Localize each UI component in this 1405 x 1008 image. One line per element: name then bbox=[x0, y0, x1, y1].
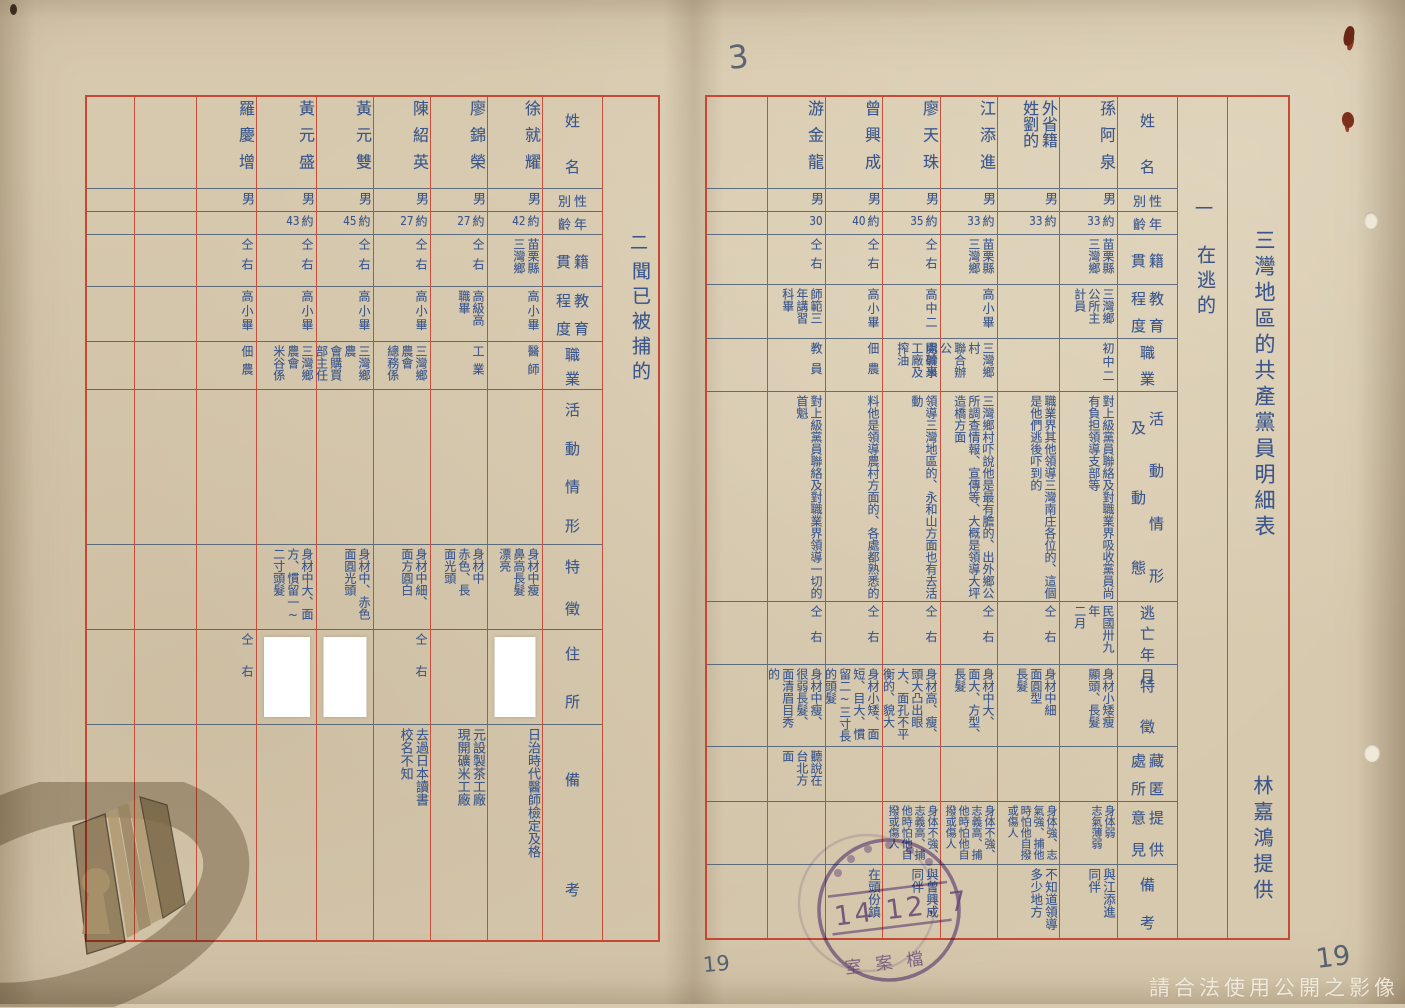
title-column: 三灣地區的共產黨員明細表林嘉鴻提供 bbox=[1227, 97, 1292, 938]
cell-age bbox=[707, 212, 767, 235]
cell-occupation: 醫師 bbox=[488, 342, 542, 390]
handwritten-text: 羅慶增 bbox=[235, 100, 254, 186]
header-activity: 活動情形及動態 bbox=[1118, 392, 1177, 602]
cell-occupation bbox=[707, 339, 767, 392]
cell-sex: 男 bbox=[197, 189, 256, 212]
header-char: 住 bbox=[565, 643, 580, 664]
handwritten-text: 男 bbox=[1100, 192, 1115, 209]
cell-hiding-place bbox=[826, 747, 882, 802]
header-char: 籍 bbox=[574, 251, 589, 272]
cell-activity bbox=[374, 390, 430, 545]
handwritten-text: 男 bbox=[413, 192, 428, 209]
watermark-text: 請合法使用公開之影像 bbox=[1149, 972, 1399, 1002]
cell-name: 黃元盛 bbox=[257, 97, 316, 189]
header-char: 供 bbox=[1149, 839, 1164, 860]
cell-age bbox=[197, 212, 256, 235]
header-label-chunk: 年 bbox=[574, 212, 587, 235]
header-label-chunk: 意見 bbox=[1131, 802, 1146, 865]
cell-hiding-place bbox=[707, 747, 767, 802]
cell-occupation: 職業 bbox=[1118, 339, 1177, 392]
cell-occupation: 三灣鄉村 聯合辦公 處幹事 bbox=[941, 339, 997, 392]
cell-address bbox=[317, 630, 373, 725]
cell-occupation: 佃農 bbox=[826, 339, 882, 392]
handwritten-text: 師範三 年講習 科畢 bbox=[781, 288, 823, 336]
cell-hiding-place: 聽說在 台北方 面 bbox=[768, 747, 825, 802]
handwritten-text: 對上級黨員聯絡及對職業界吸收黨員尚有負担領導支部等 bbox=[1087, 395, 1115, 599]
cell-features: 身材中瘦、 很弱長髮、 面清眉目秀 的 bbox=[768, 665, 825, 747]
empty-column bbox=[707, 97, 767, 938]
person-column: 孫阿泉男約33苗栗縣 三灣鄉三灣鄉 公所主 計員初中二對上級黨員聯絡及對職業界吸… bbox=[1059, 97, 1117, 938]
header-label-chunk: 姓名 bbox=[1140, 97, 1155, 189]
cell-features: 身材中 赤色、長 面光頭 bbox=[431, 545, 487, 630]
section-label: 在逃的 bbox=[1193, 245, 1216, 320]
cell-activity bbox=[707, 392, 767, 602]
handwritten-text: 職業界其他領導三灣南庄各位的、這個是他們逃後吓到的 bbox=[1029, 395, 1057, 599]
cell-sex: 男 bbox=[941, 189, 997, 212]
cell-age: 約35 bbox=[883, 212, 940, 235]
handwritten-text: 仝右 bbox=[981, 605, 995, 662]
cell-education: 高小畢 bbox=[257, 287, 316, 342]
handwritten-text: 高小畢 bbox=[300, 290, 314, 339]
header-char: 逃 bbox=[1140, 602, 1155, 623]
header-opinion: 提供意見 bbox=[1118, 802, 1177, 865]
handwritten-text: 高小畢 bbox=[866, 288, 880, 336]
handwritten-text: 仝右 bbox=[240, 238, 254, 284]
cell-name bbox=[87, 97, 134, 189]
handwritten-text: 身材中細 面圓型 長髮 bbox=[1015, 668, 1057, 744]
handwritten-text: 身材高、瘦、頭大凸出眼大、面孔不平衡的、貌大 bbox=[881, 668, 938, 744]
cell-address bbox=[488, 630, 542, 725]
header-label-chunk: 籍 bbox=[574, 235, 589, 287]
cell-hiding-place: 藏匿處所 bbox=[1118, 747, 1177, 802]
handwritten-text: 三灣鄉農會 米谷係 bbox=[272, 345, 314, 387]
cell-hiding-place bbox=[941, 747, 997, 802]
header-label-chunk: 活動情形 bbox=[565, 390, 580, 545]
cell-name: 廖天珠 bbox=[883, 97, 940, 189]
header-hiding-place: 藏匿處所 bbox=[1118, 747, 1177, 802]
handwritten-text: 仝右 bbox=[809, 605, 823, 662]
handwritten-text: 仝右 bbox=[924, 605, 938, 662]
handwritten-text: 游金龍 bbox=[804, 100, 823, 186]
header-label-chunk: 程度 bbox=[556, 287, 571, 342]
handwritten-text: 廖天珠 bbox=[919, 100, 938, 186]
cell-age: 30 bbox=[768, 212, 825, 235]
cell-native-place: 仝右 bbox=[431, 235, 487, 287]
cell-sex: 男 bbox=[826, 189, 882, 212]
header-column: 姓名性別年齡籍貫教育程度職業活動情形及動態逃亡年月特徵藏匿處所提供意見備考 bbox=[1117, 97, 1177, 938]
cell-remarks: 備考 bbox=[543, 725, 602, 944]
cell-fled-date: 仝右 bbox=[998, 602, 1059, 665]
handwritten-text: 高小畢 bbox=[240, 290, 254, 339]
handwritten-text: 身材小矮瘦 顯頭、長髮 bbox=[1087, 668, 1115, 744]
header-label-chunk: 藏匿 bbox=[1149, 747, 1164, 802]
handwritten-text: 苗栗縣 三灣鄉 bbox=[1087, 238, 1115, 282]
cell-occupation: 教員 bbox=[768, 339, 825, 392]
handwritten-text: 男 bbox=[1042, 192, 1057, 209]
header-char: 考 bbox=[565, 879, 580, 900]
handwritten-text: 仝右 bbox=[240, 633, 254, 722]
header-label-chunk: 處所 bbox=[1131, 747, 1146, 802]
header-char: 職 bbox=[565, 344, 580, 365]
cell-education bbox=[135, 287, 196, 342]
cell-native-place: 仝右 bbox=[826, 235, 882, 285]
archives-watermark-logo bbox=[0, 782, 385, 1007]
header-char: 性 bbox=[574, 191, 587, 210]
handwritten-text: 身材中、赤色面圓光頭 bbox=[343, 548, 371, 627]
header-char: 考 bbox=[1140, 912, 1155, 933]
handwritten-text: 男 bbox=[980, 192, 995, 209]
header-native-place: 籍貫 bbox=[543, 235, 602, 287]
cell-features: 身材中大、 面大、方型、 長髮 bbox=[941, 665, 997, 747]
handwritten-text: 仝右 bbox=[866, 238, 880, 282]
cell-occupation: 三灣鄉農會 米谷係 bbox=[257, 342, 316, 390]
header-char: 業 bbox=[1140, 368, 1155, 389]
handwritten-text: 民國卅九年 二月 bbox=[1073, 605, 1115, 662]
cell-native-place: 籍貫 bbox=[1118, 235, 1177, 285]
cell-name: 姓名 bbox=[1118, 97, 1177, 189]
cell-name: 江添進 bbox=[941, 97, 997, 189]
cell-features: 特徵 bbox=[1118, 665, 1177, 747]
cell-native-place: 仝右 bbox=[317, 235, 373, 287]
handwritten-text: 初中二 bbox=[1101, 342, 1115, 389]
cell-education: 教育程度 bbox=[543, 287, 602, 342]
cell-native-place: 仝右 bbox=[197, 235, 256, 287]
cell-address: 仝右 bbox=[197, 630, 256, 725]
header-char: 活 bbox=[565, 399, 580, 420]
cell-sex: 男 bbox=[257, 189, 316, 212]
handwritten-text: 身材中瘦 鼻高長髮 漂亮 bbox=[498, 548, 540, 627]
handwritten-text: 約43 bbox=[286, 215, 314, 232]
handwritten-text: 三灣鄉村吓說他是最有膽的、出外鄉公所調查情報、宣傳等、大概是領導大坪造橋方面 bbox=[953, 395, 995, 599]
header-label-chunk: 住所 bbox=[565, 630, 580, 725]
header-char: 提 bbox=[1149, 807, 1164, 828]
cell-education: 高小畢 bbox=[941, 285, 997, 339]
header-char: 動 bbox=[565, 438, 580, 459]
handwritten-text: 仝右 bbox=[809, 238, 823, 282]
cell-age: 約33 bbox=[998, 212, 1059, 235]
handwritten-text: 日治時代醫師檢定及格 bbox=[525, 728, 540, 941]
cell-occupation bbox=[87, 342, 134, 390]
handwritten-text: 身材小矮、面短、目大、慣留二~三寸長的頭髮 bbox=[823, 668, 880, 744]
cell-remarks: 備考 bbox=[1118, 865, 1177, 942]
header-char: 育 bbox=[1149, 315, 1164, 336]
header-char: 備 bbox=[565, 769, 580, 790]
handwritten-text: 三灣鄉農 會購買 部主任 bbox=[314, 345, 371, 387]
header-char: 貫 bbox=[1131, 250, 1146, 271]
cell-name bbox=[135, 97, 196, 189]
document-title: 三灣地區的共產黨員明細表 bbox=[1251, 229, 1276, 541]
cell-name: 游金龍 bbox=[768, 97, 825, 189]
edge-spot-top-left bbox=[10, 4, 17, 15]
cell-age: 約45 bbox=[317, 212, 373, 235]
header-label-chunk: 性 bbox=[1149, 189, 1162, 212]
header-label-chunk: 貫 bbox=[556, 235, 571, 287]
cell-native-place: 仝右 bbox=[374, 235, 430, 287]
cell-name: 黃元雙 bbox=[317, 97, 373, 189]
header-features: 特徵 bbox=[1118, 665, 1177, 747]
header-char: 情 bbox=[1149, 513, 1164, 534]
header-char: 活 bbox=[1149, 408, 1164, 429]
header-char: 藏 bbox=[1149, 750, 1164, 771]
handwritten-text: 料他是領導農村方面的、各處都熟悉的 bbox=[866, 395, 880, 599]
handwritten-text: 身材中瘦、 很弱長髮、 面清眉目秀 的 bbox=[766, 668, 823, 744]
header-char: 動 bbox=[1131, 487, 1146, 508]
cell-features: 身材高、瘦、頭大凸出眼大、面孔不平衡的、貌大 bbox=[883, 665, 940, 747]
section-number: 二 bbox=[626, 233, 648, 251]
cell-name: 孫阿泉 bbox=[1060, 97, 1117, 189]
header-label-chunk: 貫 bbox=[1131, 235, 1146, 285]
header-label-chunk: 特徵 bbox=[565, 545, 580, 630]
cell-native-place bbox=[998, 235, 1059, 285]
cell-remarks bbox=[707, 865, 767, 942]
handwritten-text: 對上級黨員聯絡及對職業界領導一切的首魁 bbox=[795, 395, 823, 599]
header-name: 姓名 bbox=[543, 97, 602, 189]
cell-name bbox=[707, 97, 767, 189]
cell-occupation: 三灣鄉農 會購買 部主任 bbox=[317, 342, 373, 390]
cell-activity bbox=[135, 390, 196, 545]
handwritten-text: 約27 bbox=[400, 215, 428, 232]
header-label-chunk: 教育 bbox=[574, 287, 589, 342]
cell-activity: 活動情形及動態 bbox=[1118, 392, 1177, 602]
handwritten-text: 去過日本讀書 校名不知 bbox=[397, 728, 428, 941]
header-remarks: 備考 bbox=[1118, 865, 1177, 942]
cell-native-place bbox=[707, 235, 767, 285]
handwritten-text: 苗栗縣 三灣鄉 bbox=[967, 238, 995, 282]
handwritten-text: 男 bbox=[356, 192, 371, 209]
header-char: 姓 bbox=[1140, 110, 1155, 131]
header-char: 所 bbox=[565, 691, 580, 712]
cell-address bbox=[257, 630, 316, 725]
header-name: 姓名 bbox=[1118, 97, 1177, 189]
header-label-chunk: 籍 bbox=[1149, 235, 1164, 285]
cell-sex bbox=[135, 189, 196, 212]
header-char: 齡 bbox=[558, 214, 571, 233]
cell-occupation bbox=[998, 339, 1059, 392]
handwritten-text: 身材中大、面方、慣留一~二寸頭髮 bbox=[272, 548, 314, 627]
header-address: 住所 bbox=[543, 630, 602, 725]
header-char: 姓 bbox=[565, 110, 580, 131]
cell-activity: 三灣鄉村吓說他是最有膽的、出外鄉公所調查情報、宣傳等、大概是領導大坪造橋方面 bbox=[941, 392, 997, 602]
header-age: 年齡 bbox=[543, 212, 602, 235]
header-char: 貫 bbox=[556, 251, 571, 272]
provider-name: 林嘉鴻提供 bbox=[1250, 775, 1274, 905]
header-native-place: 籍貫 bbox=[1118, 235, 1177, 285]
cell-education: 高級高 職畢 bbox=[431, 287, 487, 342]
handwritten-text: 陳紹英 bbox=[409, 100, 428, 186]
cell-age: 約33 bbox=[941, 212, 997, 235]
handwritten-text: 約40 bbox=[852, 215, 880, 232]
handwritten-text: 曾興成 bbox=[861, 100, 880, 186]
section-label: 聞已被捕的 bbox=[628, 261, 651, 386]
handwritten-text: 徐就耀 bbox=[521, 100, 540, 186]
section-column: 二聞已被捕的 bbox=[602, 97, 662, 940]
cell-opinion: 提供意見 bbox=[1118, 802, 1177, 865]
cell-education: 高小畢 bbox=[197, 287, 256, 342]
handwritten-text: 仝右 bbox=[414, 238, 428, 284]
person-column: 江添進男約33苗栗縣 三灣鄉高小畢三灣鄉村 聯合辦公 處幹事三灣鄉村吓說他是最有… bbox=[940, 97, 997, 938]
handwritten-text: 身体強、志氣強、捕他時怕他自撥或傷人 bbox=[1005, 805, 1057, 862]
handwritten-text: 約33 bbox=[1029, 215, 1057, 232]
cell-name: 羅慶增 bbox=[197, 97, 256, 189]
header-label-chunk: 職業 bbox=[1140, 339, 1155, 392]
header-char: 動 bbox=[1149, 460, 1164, 481]
cell-activity: 對上級黨員聯絡及對職業界領導一切的首魁 bbox=[768, 392, 825, 602]
header-education: 教育程度 bbox=[1118, 285, 1177, 339]
cell-sex: 男 bbox=[488, 189, 542, 212]
cell-activity: 對上級黨員聯絡及對職業界吸收黨員尚有負担領導支部等 bbox=[1060, 392, 1117, 602]
cell-education: 師範三 年講習 科畢 bbox=[768, 285, 825, 339]
cell-education: 高小畢 bbox=[488, 287, 542, 342]
cell-native-place: 仝右 bbox=[883, 235, 940, 285]
cell-name: 外省籍 姓劉的 bbox=[998, 97, 1059, 189]
cell-name: 廖錦榮 bbox=[431, 97, 487, 189]
cell-features: 身材中細、 面方圓白 bbox=[374, 545, 430, 630]
handwritten-text: 外省籍 姓劉的 bbox=[1019, 100, 1057, 186]
header-label-chunk: 程度 bbox=[1131, 285, 1146, 339]
header-label-chunk: 備考 bbox=[565, 725, 580, 944]
handwritten-text: 男 bbox=[299, 192, 314, 209]
handwritten-text: 高小畢 bbox=[357, 290, 371, 339]
cell-fled-date: 民國卅九年 二月 bbox=[1060, 602, 1117, 665]
handwritten-text: 高小畢 bbox=[981, 288, 995, 336]
cell-opinion: 身体弱 志氣薄弱 bbox=[1060, 802, 1117, 865]
header-label-chunk: 性 bbox=[574, 189, 587, 212]
header-char: 度 bbox=[556, 318, 571, 339]
cell-native-place: 籍貫 bbox=[543, 235, 602, 287]
header-char: 程 bbox=[1131, 288, 1146, 309]
header-label-chunk: 姓名 bbox=[565, 97, 580, 189]
cell-occupation bbox=[135, 342, 196, 390]
page-number-right: 19 bbox=[1314, 940, 1352, 975]
round-date-stamp: 14 12. 7 室案檔 bbox=[788, 818, 998, 1008]
handwritten-text: 醫師 bbox=[526, 345, 540, 387]
handwritten-text: 高小畢 bbox=[414, 290, 428, 339]
header-char: 籍 bbox=[1149, 250, 1164, 271]
cell-sex: 男 bbox=[1060, 189, 1117, 212]
header-char: 處 bbox=[1131, 750, 1146, 771]
header-occupation: 職業 bbox=[543, 342, 602, 390]
header-char: 情 bbox=[565, 476, 580, 497]
header-label-chunk: 年 bbox=[1149, 212, 1162, 235]
header-char: 育 bbox=[574, 318, 589, 339]
header-char: 教 bbox=[1149, 288, 1164, 309]
handwritten-text: 仝右 bbox=[924, 238, 938, 282]
header-char: 見 bbox=[1131, 839, 1146, 860]
cell-occupation: 初中二 bbox=[1060, 339, 1117, 392]
cell-sex: 性別 bbox=[543, 189, 602, 212]
person-column: 徐就耀男約42苗栗縣 三灣鄉高小畢醫師身材中瘦 鼻高長髮 漂亮日治時代醫師檢定及… bbox=[487, 97, 542, 940]
cell-fled-date: 仝右 bbox=[883, 602, 940, 665]
header-char: 業 bbox=[565, 368, 580, 389]
header-column: 姓名性別年齡籍貫教育程度職業活動情形特徵住所備考 bbox=[542, 97, 602, 940]
handwritten-text: 仝右 bbox=[300, 238, 314, 284]
page-number-left: 19 bbox=[702, 951, 731, 977]
header-label-chunk: 別 bbox=[1133, 189, 1146, 212]
handwritten-text: 約35 bbox=[910, 215, 938, 232]
handwritten-text: 聽說在 台北方 面 bbox=[781, 750, 823, 799]
stamp-bottom-label: 室案檔 bbox=[844, 948, 939, 979]
cell-education bbox=[707, 285, 767, 339]
handwritten-text: 身体弱 志氣薄弱 bbox=[1089, 805, 1115, 862]
header-occupation: 職業 bbox=[1118, 339, 1177, 392]
cell-features bbox=[197, 545, 256, 630]
redaction-box bbox=[324, 637, 367, 717]
header-char: 亡 bbox=[1140, 623, 1155, 644]
header-char: 職 bbox=[1140, 342, 1155, 363]
cell-education: 教育程度 bbox=[1118, 285, 1177, 339]
person-column: 曾興成男約40仝右高小畢佃農料他是領導農村方面的、各處都熟悉的仝右身材小矮、面短… bbox=[825, 97, 882, 938]
header-label-chunk: 別 bbox=[558, 189, 571, 212]
handwritten-text: 仝右 bbox=[357, 238, 371, 284]
handwritten-text: 領導三灣地區的、永和山方面也有去活動 bbox=[910, 395, 938, 599]
cell-education bbox=[998, 285, 1059, 339]
header-char: 年 bbox=[1149, 214, 1162, 233]
header-char: 名 bbox=[565, 156, 580, 177]
handwritten-text: 約33 bbox=[1087, 215, 1115, 232]
cell-occupation: 佃農 bbox=[197, 342, 256, 390]
cell-features bbox=[707, 665, 767, 747]
handwritten-text: 佃農 bbox=[866, 342, 880, 389]
handwritten-text: 高中二 bbox=[924, 288, 938, 336]
handwritten-text: 身材中 赤色、長 面光頭 bbox=[443, 548, 485, 627]
header-char: 意 bbox=[1131, 807, 1146, 828]
header-label-chunk: 提供 bbox=[1149, 802, 1164, 865]
cell-age: 約43 bbox=[257, 212, 316, 235]
cell-fled-date bbox=[707, 602, 767, 665]
header-sex: 性別 bbox=[543, 189, 602, 212]
cell-features: 身材中細 面圓型 長髮 bbox=[998, 665, 1059, 747]
cell-address bbox=[431, 630, 487, 725]
cell-native-place: 苗栗縣 三灣鄉 bbox=[1060, 235, 1117, 285]
cell-features bbox=[87, 545, 134, 630]
cell-features: 特徵 bbox=[543, 545, 602, 630]
section-column: 一在逃的 bbox=[1177, 97, 1227, 938]
cell-age: 年齡 bbox=[1118, 212, 1177, 235]
cell-activity: 活動情形 bbox=[543, 390, 602, 545]
cell-activity: 料他是領導農村方面的、各處都熟悉的 bbox=[826, 392, 882, 602]
cell-age bbox=[87, 212, 134, 235]
handwritten-text: 約27 bbox=[457, 215, 485, 232]
handwritten-text: 與江添進 同伴 bbox=[1086, 868, 1116, 939]
cell-occupation: 職業 bbox=[543, 342, 602, 390]
header-char: 備 bbox=[1140, 874, 1155, 895]
handwritten-text: 江添進 bbox=[976, 100, 995, 186]
cell-address bbox=[135, 630, 196, 725]
cell-age bbox=[135, 212, 196, 235]
header-fled-date: 逃亡年月 bbox=[1118, 602, 1177, 665]
header-char: 名 bbox=[1140, 156, 1155, 177]
handwritten-text: 廖錦榮 bbox=[466, 100, 485, 186]
cell-opinion: 身体強、志氣強、捕他時怕他自撥或傷人 bbox=[998, 802, 1059, 865]
person-column: 外省籍 姓劉的男約33職業界其他領導三灣南庄各位的、這個是他們逃後吓到的仝右身材… bbox=[997, 97, 1059, 938]
header-label-chunk: 教育 bbox=[1149, 285, 1164, 339]
redaction-box bbox=[495, 637, 536, 717]
handwritten-text: 孫阿泉 bbox=[1096, 100, 1115, 186]
handwritten-text: 約42 bbox=[512, 215, 540, 232]
header-char: 度 bbox=[1131, 315, 1146, 336]
cell-activity bbox=[87, 390, 134, 545]
header-char: 年 bbox=[574, 214, 587, 233]
header-activity: 活動情形 bbox=[543, 390, 602, 545]
handwritten-text: 男 bbox=[470, 192, 485, 209]
cell-age: 約33 bbox=[1060, 212, 1117, 235]
cell-native-place: 苗栗縣 三灣鄉 bbox=[941, 235, 997, 285]
handwritten-text: 30 bbox=[809, 215, 823, 232]
handwritten-text: 三灣鄉 公所主 計員 bbox=[1073, 288, 1115, 336]
cell-sex: 男 bbox=[883, 189, 940, 212]
handwritten-text: 身材中細、 面方圓白 bbox=[400, 548, 428, 627]
header-char: 態 bbox=[1131, 557, 1146, 578]
